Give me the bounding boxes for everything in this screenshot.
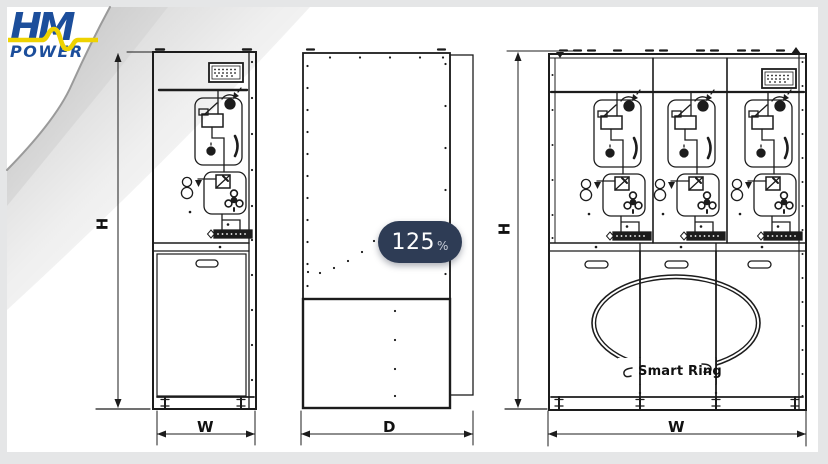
dim-label-depth-side: D [383, 418, 395, 436]
zoom-percent-sign: % [437, 239, 448, 253]
hm-power-logo: HM POWER [10, 8, 140, 61]
zoom-value: 125 [392, 230, 436, 255]
dim-label-width-front: W [197, 418, 214, 436]
viewer-stage: HM POWER H W D H W Smart Ring 125 % [0, 0, 828, 464]
smart-ring-annotation: Smart Ring [638, 364, 722, 379]
dim-label-width-triple: W [668, 418, 685, 436]
logo-text-hm: HM [10, 8, 140, 46]
zoom-level-badge[interactable]: 125 % [378, 221, 462, 263]
dim-label-height-front: H [93, 218, 111, 231]
logo-text-power: POWER [10, 42, 140, 61]
dim-label-height-triple: H [495, 223, 513, 236]
front-view-three-panel [505, 47, 806, 446]
